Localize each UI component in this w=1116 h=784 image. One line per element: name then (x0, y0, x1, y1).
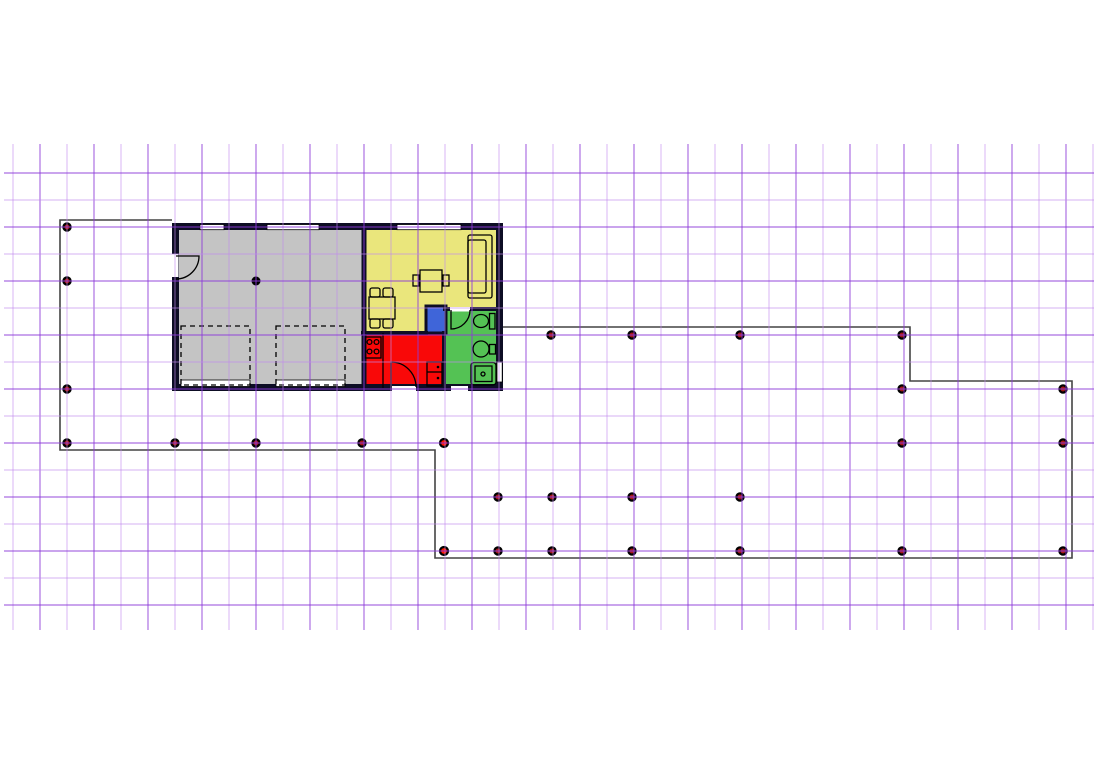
floor-plan-canvas[interactable] (0, 0, 1116, 784)
floor-plan-editor (0, 0, 1116, 784)
canvas-background (0, 0, 1116, 784)
room-closet[interactable] (427, 307, 445, 332)
